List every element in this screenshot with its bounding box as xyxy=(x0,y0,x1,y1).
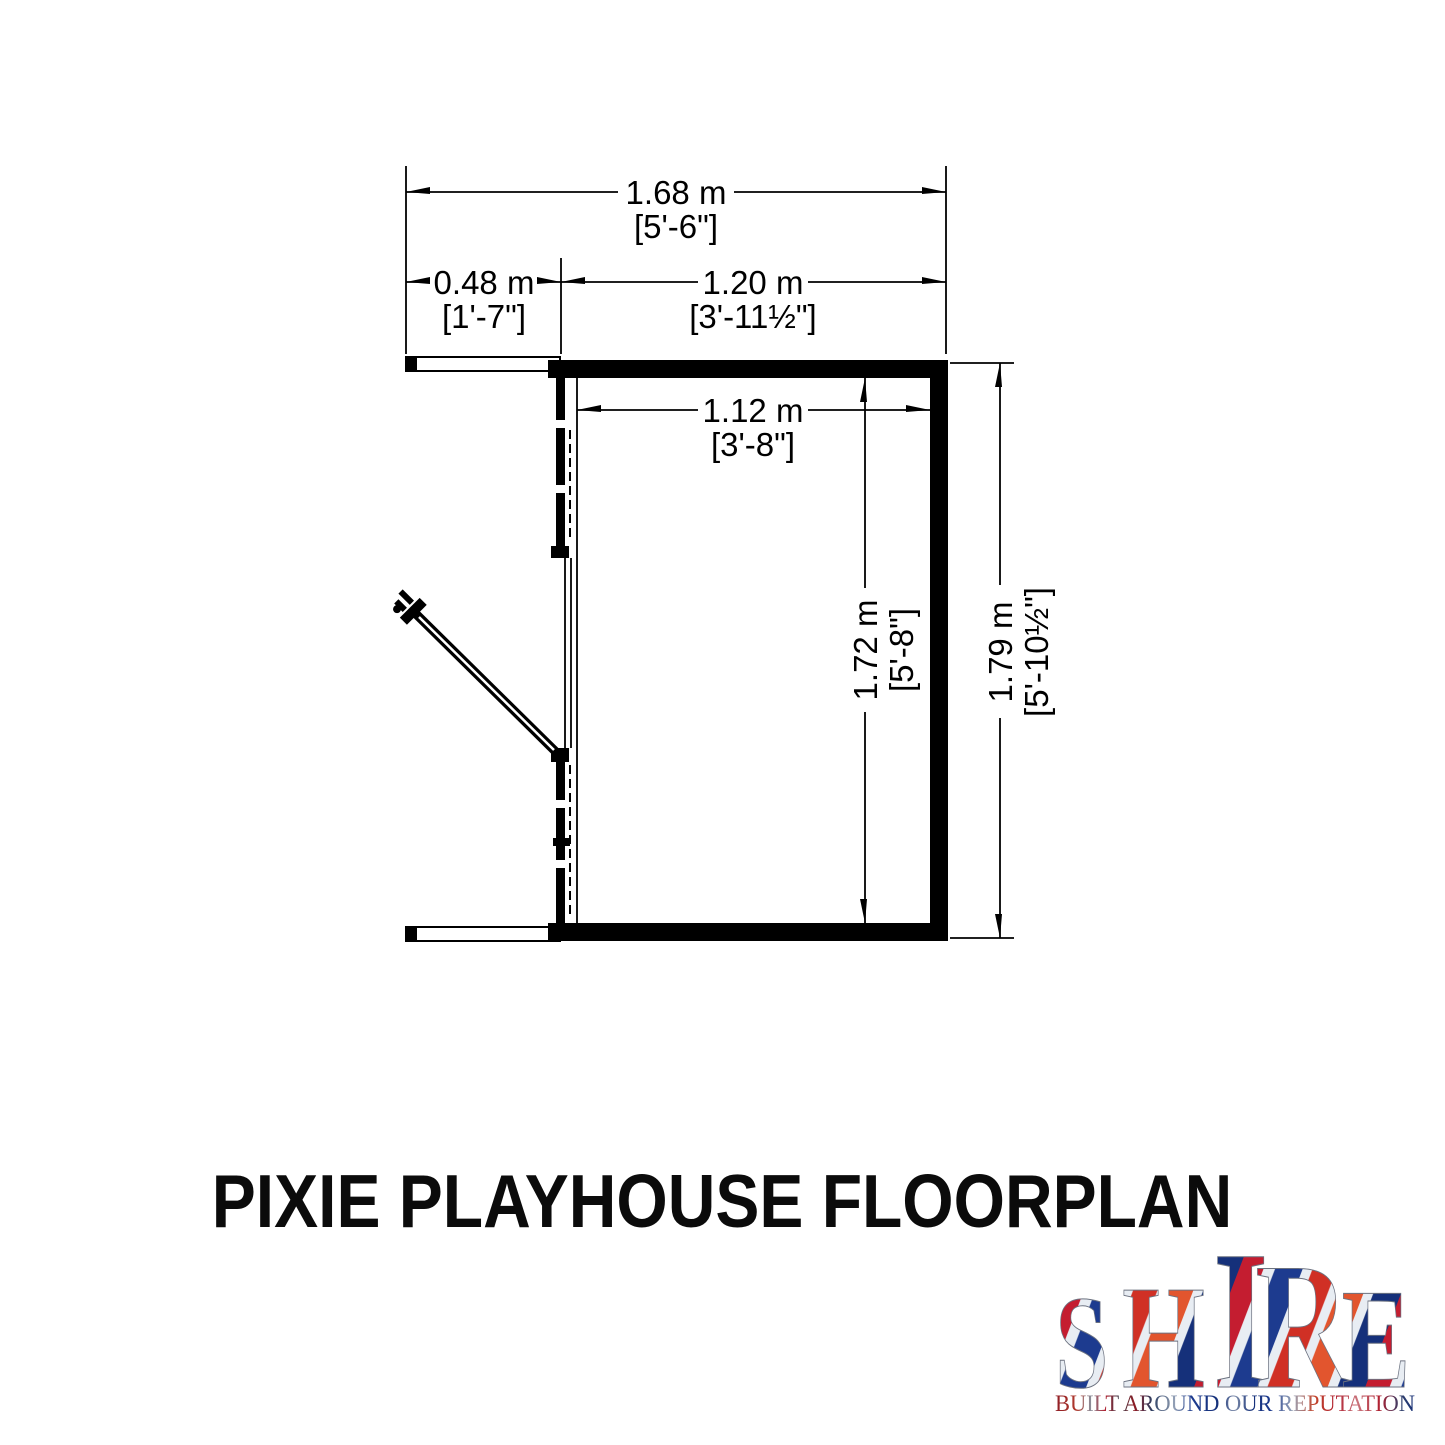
wall-right xyxy=(930,360,948,941)
porch-deck-bottom-edge xyxy=(406,927,560,941)
dim-overall-depth-imperial: [5'-10½"] xyxy=(1018,587,1055,717)
wall-bottom xyxy=(548,923,948,941)
dimension-labels: 1.68 m [5'-6"] 0.48 m [1'-7"] 1.20 m [3'… xyxy=(434,174,1055,717)
floorplan-drawing: 1.68 m [5'-6"] 0.48 m [1'-7"] 1.20 m [3'… xyxy=(0,0,1445,1445)
porch-deck-top-cap xyxy=(406,357,417,371)
dim-internal-width-metric: 1.12 m xyxy=(703,392,804,429)
windows xyxy=(553,378,570,923)
door-leaf-core xyxy=(419,617,554,750)
dim-porch-depth-imperial: [1'-7"] xyxy=(442,298,526,335)
porch-deck xyxy=(406,357,560,941)
dim-overall-width-metric: 1.68 m xyxy=(626,174,727,211)
window-lower-gap xyxy=(556,800,565,808)
window-lower-gap xyxy=(556,860,565,868)
dim-overall-depth-metric: 1.79 m xyxy=(982,602,1019,703)
dim-porch-depth-metric: 0.48 m xyxy=(434,264,535,301)
window-lower-frame xyxy=(556,752,565,923)
dim-building-width-imperial: [3'-11½"] xyxy=(689,298,816,335)
dim-internal-depth-imperial: [5'-8"] xyxy=(883,608,920,692)
logo-tagline: BUILT AROUND OUR REPUTATION xyxy=(1055,1391,1415,1416)
window-upper-frame xyxy=(556,378,565,546)
window-upper-gap xyxy=(556,485,565,493)
porch-deck-top-edge xyxy=(406,357,560,371)
door xyxy=(387,546,571,762)
door-jamb-top xyxy=(551,546,569,558)
dim-internal-width-imperial: [3'-8"] xyxy=(711,426,795,463)
dim-overall-width-imperial: [5'-6"] xyxy=(634,208,718,245)
floorplan-page: 1.68 m [5'-6"] 0.48 m [1'-7"] 1.20 m [3'… xyxy=(0,0,1445,1445)
window-lower-mid-jamb xyxy=(553,838,570,846)
dim-internal-depth-metric: 1.72 m xyxy=(847,600,884,701)
dim-building-width-metric: 1.20 m xyxy=(703,264,804,301)
wall-top xyxy=(548,360,948,378)
window-upper-gap xyxy=(556,420,565,428)
page-title: PIXIE PLAYHOUSE FLOORPLAN xyxy=(212,1159,1232,1243)
porch-deck-bottom-cap xyxy=(406,927,417,941)
